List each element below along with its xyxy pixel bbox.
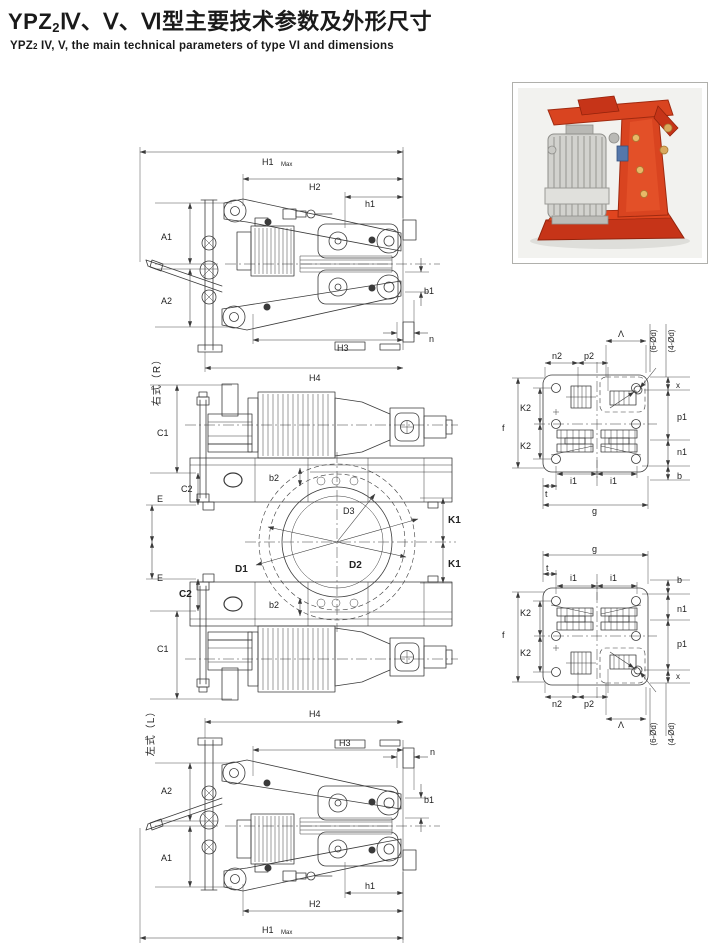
dim-A2-top: A2 [161,296,172,306]
dim-H1-sub-top: Max [281,162,292,168]
dim-i1-top-1: i1 [570,476,577,486]
dim-b1-top: b1 [424,286,434,296]
orientation-left: 左式（L） [144,706,157,757]
dim-g-top: g [592,506,597,516]
dim-h1-top: h1 [365,199,375,209]
dim-p1-bottom: p1 [677,639,687,649]
dim-C1-top: C1 [157,428,169,438]
dim-t-bottom: t [546,563,549,573]
dim-b-top: b [677,471,682,481]
dim-n2-top: n2 [552,351,562,361]
dim-K1-lower: K1 [448,559,461,570]
dim-b2-top: b2 [269,473,279,483]
technical-drawing: H1 Max H2 h1 A1 A2 H3 H4 b1 n 右式（R） C1 C… [0,0,714,950]
dim-p2-bottom: p2 [584,699,594,709]
dim-K2-bottom-1: K2 [520,608,531,618]
dim-K2-top-1: K2 [520,403,531,413]
labels: H1 Max H2 h1 A1 A2 H3 H4 b1 n 右式（R） C1 C… [144,157,687,936]
dim-f-bottom: f [502,630,505,640]
note-4-holes-top: (4-Ød) [667,329,676,352]
dim-lambda-top: Λ [618,329,624,339]
dim-H3-top: H3 [337,343,349,353]
dim-g-bottom: g [592,544,597,554]
dim-b-bottom: b [677,575,682,585]
note-4-holes-bottom: (4-Ød) [667,722,676,745]
dim-i1-bottom-1: i1 [570,573,577,583]
dim-K2-top-2: K2 [520,441,531,451]
dim-C2-bottom: C2 [179,589,192,600]
dim-K2-bottom-2: K2 [520,648,531,658]
dim-D1: D1 [235,564,248,575]
base-view [512,324,690,509]
dim-H4-top: H4 [309,373,321,383]
dim-H1-sub-bottom: Max [281,930,292,936]
dim-E-top: E [157,494,163,504]
dim-H2-top: H2 [309,182,321,192]
dim-i1-top-2: i1 [610,476,617,486]
dim-b1-bottom: b1 [424,795,434,805]
dim-A2-bottom: A2 [161,786,172,796]
dim-A1-top: A1 [161,232,172,242]
base-view-mirror [512,551,690,736]
dim-h1-bottom: h1 [365,881,375,891]
dim-D3: D3 [343,506,355,516]
dim-n1-top: n1 [677,447,687,457]
dim-b2-bottom: b2 [269,600,279,610]
dim-lambda-bottom: Λ [618,720,624,730]
dim-A1-bottom: A1 [161,853,172,863]
catalog-page: YPZ2Ⅳ、Ⅴ、Ⅵ型主要技术参数及外形尺寸 YPZ2 IV, V, the ma… [0,0,714,950]
side-view-right [140,147,440,372]
dim-n2-bottom: n2 [552,699,562,709]
dim-p2-top: p2 [584,351,594,361]
dim-H1-bottom: H1 [262,925,274,935]
side-view-left [140,718,440,943]
dim-H2-bottom: H2 [309,899,321,909]
dim-f-top: f [502,423,505,433]
dim-H1-top: H1 [262,157,274,167]
dim-H4-bottom: H4 [309,709,321,719]
dim-n-bottom: n [430,747,435,757]
dim-t-top: t [545,489,548,499]
dim-C2-top: C2 [181,484,193,494]
dim-H3-bottom: H3 [339,738,351,748]
dim-p1-top: p1 [677,412,687,422]
orientation-right: 右式（R） [150,354,163,406]
dim-i1-bottom-2: i1 [610,573,617,583]
dim-n1-bottom: n1 [677,604,687,614]
dim-D2: D2 [349,560,362,571]
dim-E-bottom: E [157,573,163,583]
note-6-holes-bottom: (6-Ød) [649,722,658,745]
dim-x-bottom: x [676,672,680,681]
dim-C1-bottom: C1 [157,644,169,654]
dim-n-top: n [429,334,434,344]
note-6-holes-top: (6-Ød) [649,329,658,352]
dim-x-top: x [676,381,680,390]
dim-K1-upper: K1 [448,515,461,526]
